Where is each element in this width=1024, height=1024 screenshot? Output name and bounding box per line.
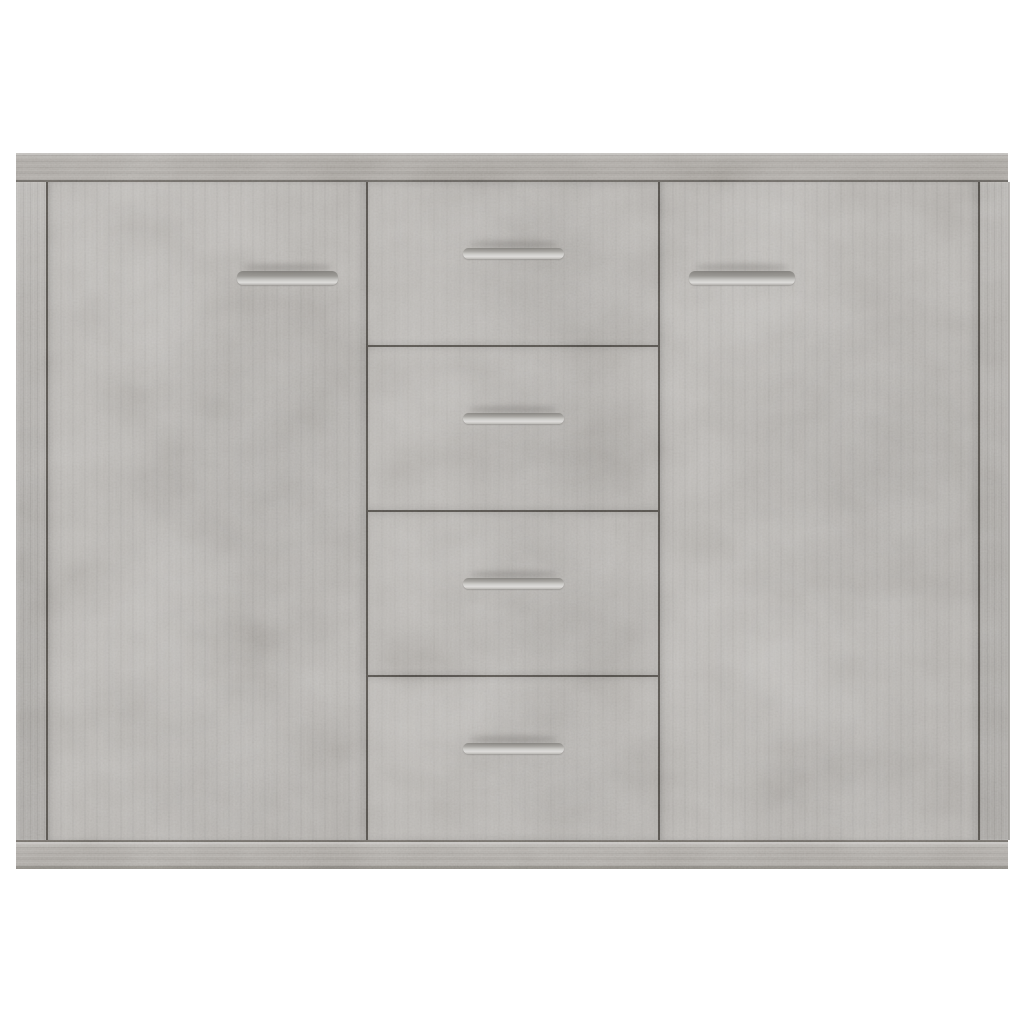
drawer-1-handle [463, 248, 564, 259]
drawer-3-handle [463, 578, 564, 589]
drawer-column [366, 182, 658, 840]
drawer-2 [368, 347, 658, 512]
cabinet-body [16, 182, 1008, 840]
left-side-panel [16, 182, 48, 840]
drawer-4 [368, 677, 658, 840]
drawer-2-handle [463, 413, 564, 424]
right-side-panel [978, 182, 1010, 840]
right-door-handle [689, 271, 795, 285]
right-door [658, 182, 978, 840]
sideboard-base-panel [16, 840, 1008, 869]
sideboard-top-panel [16, 153, 1008, 182]
product-photo-background [0, 0, 1024, 1024]
sideboard [16, 153, 1008, 869]
drawer-3 [368, 512, 658, 677]
left-door [48, 182, 366, 840]
drawer-1 [368, 182, 658, 347]
left-door-handle [237, 271, 338, 285]
drawer-4-handle [463, 743, 564, 754]
